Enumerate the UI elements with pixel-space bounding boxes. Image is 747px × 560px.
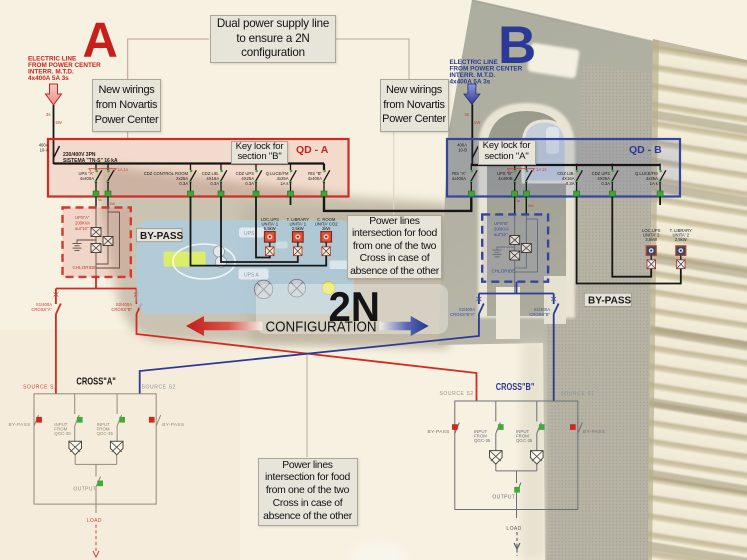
svg-text:3s: 3s <box>98 198 102 202</box>
svg-text:1A s: 1A s <box>280 181 288 186</box>
svg-text:CHLORIDE: CHLORIDE <box>73 265 97 270</box>
svg-text:UPS: UPS <box>244 231 255 237</box>
svg-text:aut"10": aut"10" <box>75 226 89 231</box>
svg-text:QD - A: QD - A <box>296 144 329 156</box>
svg-text:SOURCE S2: SOURCE S2 <box>142 385 176 391</box>
svg-text:0.3A: 0.3A <box>566 181 575 186</box>
svg-text:SOURCE S1: SOURCE S1 <box>23 385 57 391</box>
svg-text:0.3A: 0.3A <box>601 181 610 186</box>
svg-text:UPS"A": UPS"A" <box>75 215 90 220</box>
svg-text:QGC-35: QGC-35 <box>97 431 114 436</box>
svg-text:0.3A: 0.3A <box>210 181 219 186</box>
svg-text:5,5kW: 5,5kW <box>264 226 276 231</box>
svg-text:4x400A: 4x400A <box>452 176 466 181</box>
svg-text:QGC-35: QGC-35 <box>474 438 491 443</box>
svg-text:BY-PASS: BY-PASS <box>583 429 605 435</box>
svg-text:5W: 5W <box>528 204 534 208</box>
svg-text:3s: 3s <box>465 112 469 117</box>
svg-text:CROSS"B": CROSS"B" <box>529 312 550 317</box>
svg-text:3,5kW: 3,5kW <box>645 237 657 242</box>
svg-text:BY-PASS: BY-PASS <box>428 429 450 435</box>
svg-text:1A 1s: 1A 1s <box>118 167 128 172</box>
svg-text:4x400B: 4x400B <box>498 176 512 181</box>
svg-text:2,5kW: 2,5kW <box>292 226 304 231</box>
svg-text:CONFIGURATION: CONFIGURATION <box>266 319 377 336</box>
svg-text:aut"10": aut"10" <box>494 232 508 237</box>
svg-text:1A s: 1A s <box>650 181 658 186</box>
svg-text:5W: 5W <box>474 120 480 125</box>
svg-text:LOAD: LOAD <box>506 526 521 532</box>
svg-text:CROSS"B"A": CROSS"B"A" <box>450 312 475 317</box>
svg-text:3s: 3s <box>516 199 520 203</box>
svg-text:10-A: 10-A <box>40 148 49 153</box>
svg-text:QD - B: QD - B <box>629 144 662 156</box>
svg-text:4x400A: 4x400A <box>308 176 322 181</box>
svg-text:OUTPUT: OUTPUT <box>492 495 515 501</box>
svg-text:CROSS"B": CROSS"B" <box>111 307 132 312</box>
svg-text:UPS A: UPS A <box>244 273 259 279</box>
svg-text:QGC-35: QGC-35 <box>516 438 533 443</box>
svg-text:0.3A: 0.3A <box>245 181 254 186</box>
svg-text:SOURCE S2: SOURCE S2 <box>440 391 474 397</box>
svg-text:CROSS"B": CROSS"B" <box>496 381 535 393</box>
svg-text:OUTPUT: OUTPUT <box>73 487 96 493</box>
svg-text:4x400A 5A 3s: 4x400A 5A 3s <box>28 75 69 82</box>
svg-text:200KVA: 200KVA <box>75 221 90 226</box>
svg-text:CROSS"A": CROSS"A" <box>76 376 116 388</box>
svg-text:BY-PASS: BY-PASS <box>9 422 31 428</box>
svg-text:0.3A: 0.3A <box>179 181 188 186</box>
svg-text:1A 1s: 1A 1s <box>536 167 546 172</box>
svg-text:10-B: 10-B <box>458 148 467 153</box>
svg-text:4x400A: 4x400A <box>80 176 94 181</box>
svg-text:200KVA: 200KVA <box>494 227 509 232</box>
svg-text:3s: 3s <box>46 112 50 117</box>
svg-text:CHLORIDE: CHLORIDE <box>492 269 516 274</box>
svg-text:5W: 5W <box>110 202 116 206</box>
svg-text:BY-PASS: BY-PASS <box>588 296 631 307</box>
svg-text:230/400V 3PN: 230/400V 3PN <box>63 152 96 158</box>
svg-text:CROSS"A": CROSS"A" <box>31 307 52 312</box>
svg-text:2kW: 2kW <box>322 226 330 231</box>
svg-text:UPS"B": UPS"B" <box>494 221 509 226</box>
svg-text:LOAD: LOAD <box>87 518 102 524</box>
svg-text:BY-PASS: BY-PASS <box>162 422 184 428</box>
svg-text:5W: 5W <box>56 120 62 125</box>
svg-text:2,5kW: 2,5kW <box>675 237 687 242</box>
svg-text:BY-PASS: BY-PASS <box>140 231 183 242</box>
svg-text:QGC-35: QGC-35 <box>54 431 71 436</box>
svg-text:SOURCE S1: SOURCE S1 <box>561 391 595 397</box>
svg-text:A: A <box>83 14 118 68</box>
